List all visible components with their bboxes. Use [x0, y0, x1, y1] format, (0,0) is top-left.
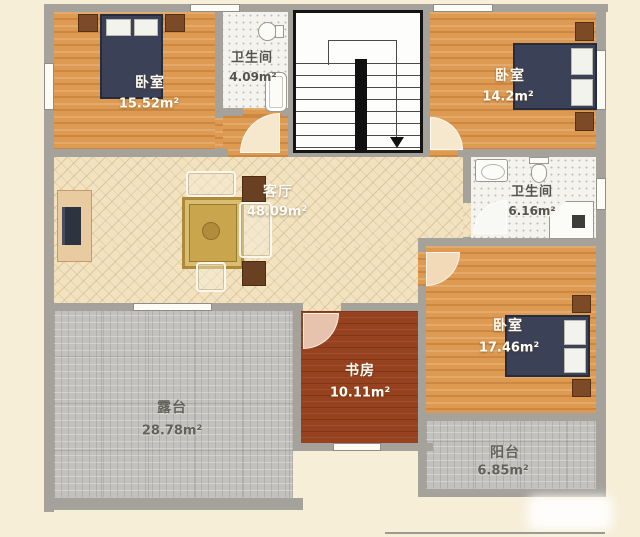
armchair	[196, 262, 226, 292]
room-area: 4.09m²	[229, 70, 276, 84]
staircase	[293, 10, 423, 153]
room-area: 6.85m²	[477, 464, 528, 479]
window-study-bottom	[333, 443, 381, 451]
wall-terrace-bottom	[44, 498, 303, 510]
wall-living-bottom	[44, 303, 426, 311]
room-label: 卫生间	[511, 181, 553, 200]
bottom-edge-line	[385, 532, 605, 534]
nightstand	[78, 14, 98, 32]
wall-bedroom3-balcony	[418, 413, 606, 421]
stair-divider	[355, 59, 367, 150]
stair-walkline	[396, 65, 397, 137]
sofa-top	[186, 171, 236, 197]
window-top-1	[190, 4, 240, 12]
wall-terrace-study	[293, 311, 301, 451]
shower-drain	[572, 215, 585, 228]
room-area: 15.52m²	[119, 97, 179, 112]
nightstand	[572, 379, 591, 397]
room-label: 卧室	[493, 315, 523, 335]
window-living-terrace	[133, 303, 212, 311]
room-area: 10.11m²	[330, 386, 390, 401]
toilet-tank	[275, 25, 284, 38]
pillow	[571, 79, 593, 106]
room-label: 书房	[345, 360, 375, 380]
door-opening-bedroom-bottom-right	[418, 252, 426, 286]
window-top-2	[433, 4, 493, 12]
pillow	[564, 348, 586, 373]
wall-bathroom-right-bottom	[418, 238, 606, 246]
room-label: 阳台	[490, 442, 520, 462]
room-area: 48.09m²	[247, 205, 307, 220]
side-table	[242, 261, 266, 286]
room-label: 卫生间	[231, 47, 273, 66]
tv	[62, 207, 81, 245]
window-bedroom2-right	[596, 50, 606, 110]
room-area: 17.46m²	[479, 341, 539, 356]
room-label: 露台	[157, 397, 187, 417]
pillow	[564, 320, 586, 345]
wall-stairs-bedroom2	[422, 4, 430, 157]
room-area: 28.78m²	[142, 424, 202, 439]
nightstand	[575, 22, 594, 41]
stairs-down-arrow-icon	[390, 137, 404, 148]
sink-basin	[481, 164, 505, 180]
pillow	[571, 48, 593, 75]
door-opening-study	[303, 303, 341, 311]
pillow	[106, 19, 131, 36]
nightstand	[165, 14, 185, 32]
rug	[182, 197, 244, 269]
floor-plan: 卧室 15.52m² 卫生间 4.09m² 卧室 14.2m² 客厅 48.09…	[0, 0, 640, 537]
watermark-blur	[528, 496, 612, 530]
room-area: 14.2m²	[482, 90, 533, 105]
nightstand	[572, 295, 591, 313]
window-bathroom-right	[596, 178, 606, 210]
window-bedroom1-left	[44, 63, 54, 110]
sink	[475, 159, 508, 182]
room-label: 卧室	[135, 72, 165, 92]
room-label: 卧室	[495, 65, 525, 85]
pillow	[134, 19, 158, 36]
wall-balcony-left	[418, 421, 426, 497]
room-area: 6.16m²	[508, 204, 555, 218]
room-label: 客厅	[263, 181, 293, 201]
door-opening-bedroom-top-left	[215, 118, 223, 148]
door-opening-bedroom-top-right	[430, 149, 458, 157]
door-opening-bathroom-right	[463, 203, 471, 237]
rug-medallion	[202, 222, 220, 240]
toilet-tank	[529, 157, 549, 164]
nightstand	[575, 112, 594, 131]
